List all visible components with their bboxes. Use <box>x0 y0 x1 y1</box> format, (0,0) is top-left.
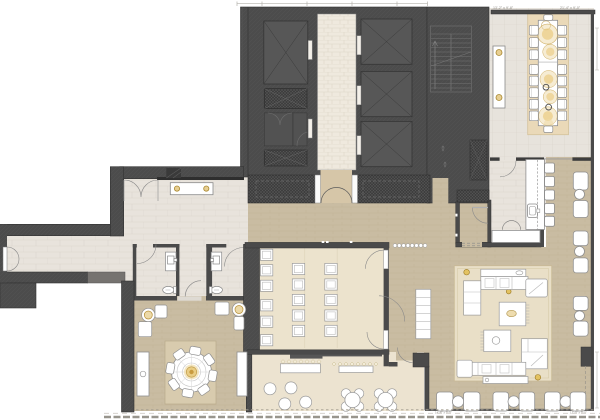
svg-text:14'-8" x 9'-0": 14'-8" x 9'-0" <box>435 411 452 415</box>
svg-text:12'-0" x 9'-0": 12'-0" x 9'-0" <box>570 411 587 415</box>
svg-text:21'-4" x 9'-0": 21'-4" x 9'-0" <box>560 6 581 10</box>
svg-text:13'-2" x 9'-8": 13'-2" x 9'-8" <box>493 6 514 10</box>
